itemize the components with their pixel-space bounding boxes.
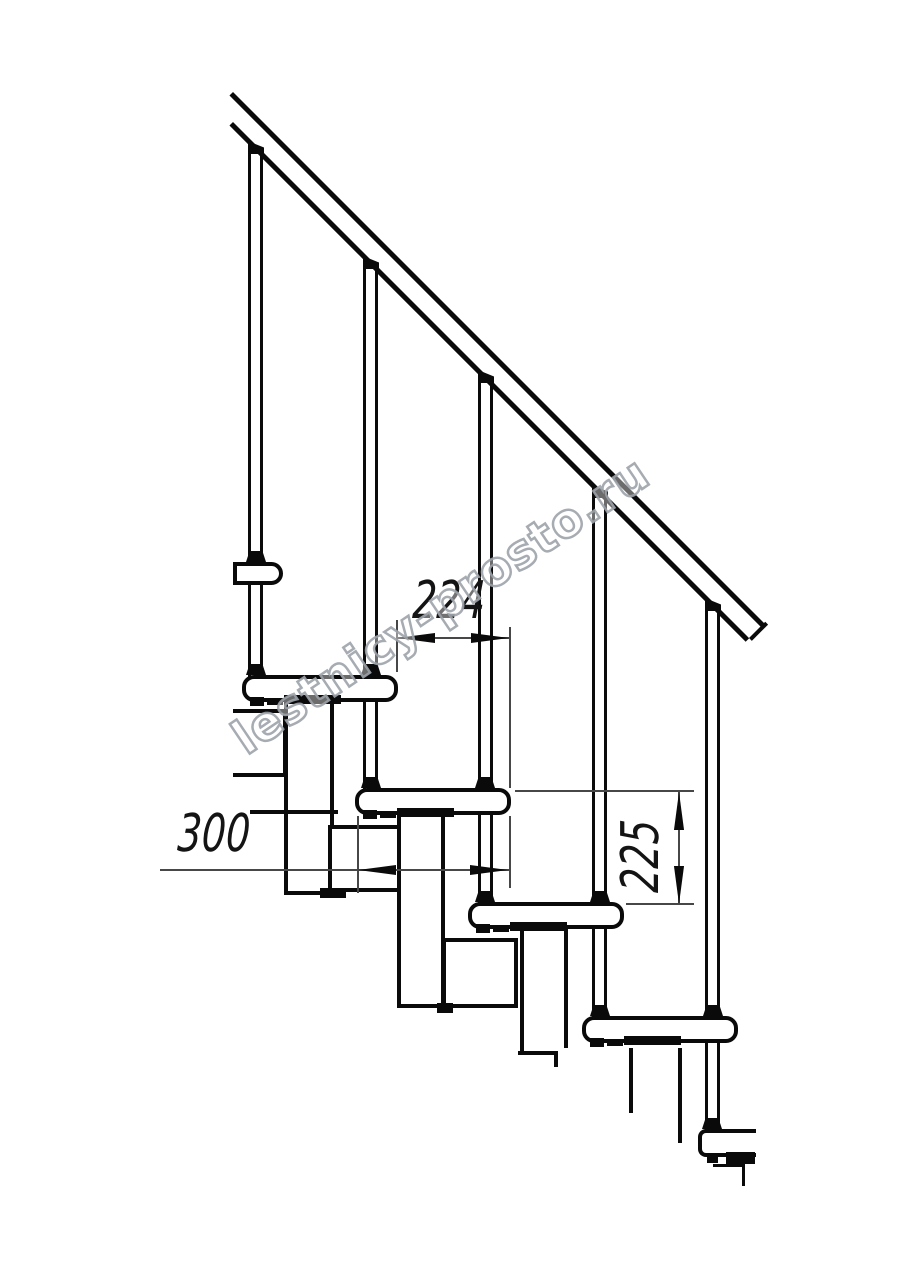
extension-line (515, 790, 694, 792)
tube-attach-band (397, 808, 454, 817)
tread-foot (607, 1039, 623, 1046)
module-tube-3-left-edge (520, 927, 524, 1052)
module-tube-4-right-edge (678, 1048, 682, 1143)
extension-line (509, 627, 511, 788)
module-joint-mark (437, 1003, 453, 1013)
extension-line (509, 816, 511, 888)
module-head-4-top-plate (518, 1051, 558, 1055)
cut-line (713, 1164, 745, 1167)
dimension-line-300 (160, 869, 510, 871)
module-joint-mark (320, 888, 346, 898)
tread-foot (363, 810, 377, 819)
handrail-wall-bracket (233, 562, 283, 585)
module-tube-4-left-edge (629, 1048, 633, 1113)
baluster-4 (592, 494, 607, 1022)
module-tube-2 (397, 813, 445, 1008)
module-edge-line (250, 810, 338, 814)
module-head-3 (442, 938, 518, 1008)
tube-attach-band (726, 1152, 755, 1164)
module-tube-3-right-edge (564, 927, 568, 1048)
tread-foot (590, 1038, 604, 1047)
staircase-drawing: 224 300 225 lestnicy-prosto.ru (0, 0, 914, 1280)
baluster-3 (478, 379, 493, 908)
tube-attach-band (510, 922, 567, 931)
module-head-4-cut-edge (554, 1055, 558, 1067)
cut-line (742, 1167, 745, 1186)
tread-foot (476, 924, 490, 933)
module-head-2 (328, 825, 405, 892)
baluster-1 (248, 150, 263, 681)
tread-foot (707, 1155, 718, 1163)
dimension-value-225: 225 (611, 818, 671, 894)
tread-foot (493, 925, 509, 932)
arrowhead-up (673, 792, 685, 830)
baluster-5 (705, 607, 720, 1135)
dimension-value-300: 300 (176, 804, 252, 864)
tread-foot (380, 811, 396, 818)
extension-line (626, 903, 694, 905)
extension-line (357, 816, 359, 893)
baluster-2 (363, 265, 378, 794)
arrowhead-down (673, 866, 685, 904)
tube-attach-band (624, 1036, 681, 1045)
